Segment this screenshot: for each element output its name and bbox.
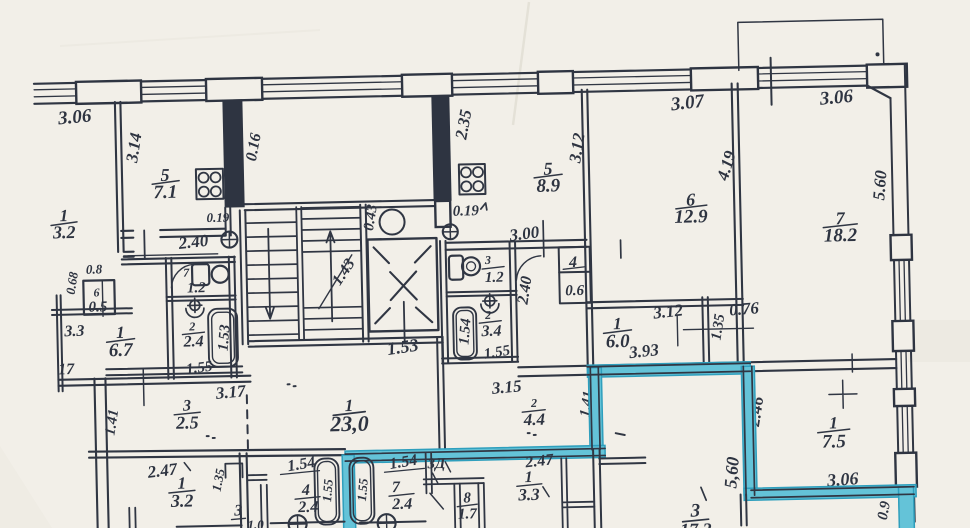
svg-text:1.54: 1.54 [456,317,474,345]
svg-text:18.2: 18.2 [824,225,858,247]
svg-text:3.17: 3.17 [214,381,248,403]
svg-text:12.9: 12.9 [674,206,708,228]
svg-text:3.4: 3.4 [480,323,501,340]
svg-text:3: 3 [233,502,242,519]
svg-text:3.2: 3.2 [170,490,194,511]
svg-text:2: 2 [530,396,537,410]
svg-text:1.53: 1.53 [215,324,233,352]
svg-text:3.06: 3.06 [56,105,93,129]
svg-text:3.3: 3.3 [63,323,84,340]
svg-text:1.55: 1.55 [185,359,214,378]
svg-text:7: 7 [392,479,401,496]
svg-text:1: 1 [524,469,532,486]
svg-text:8: 8 [463,490,471,506]
svg-text:0.76: 0.76 [728,298,760,319]
svg-text:2.4: 2.4 [391,496,412,513]
svg-text:8.9: 8.9 [536,175,561,197]
svg-text:3.2: 3.2 [52,222,76,243]
svg-text:2.40: 2.40 [177,231,210,253]
svg-text:3: 3 [689,500,700,521]
svg-text:1.55: 1.55 [354,477,371,501]
svg-text:17: 17 [58,361,75,378]
svg-text:1.55: 1.55 [319,478,336,502]
svg-text:2.47: 2.47 [145,459,179,482]
svg-text:1.2: 1.2 [485,270,505,286]
svg-text:3.07: 3.07 [669,91,707,116]
svg-text:3Д: 3Д [426,456,446,472]
svg-text:5.60: 5.60 [869,169,890,201]
svg-text:1.2: 1.2 [187,280,207,296]
svg-text:3.93: 3.93 [627,340,660,362]
svg-text:5,60: 5,60 [720,456,743,489]
svg-text:1.0: 1.0 [247,517,264,528]
svg-text:2: 2 [484,308,491,322]
svg-text:3.3: 3.3 [517,485,540,504]
svg-text:6.7: 6.7 [109,340,135,362]
svg-text:0.6: 0.6 [565,283,585,299]
svg-text:2.4: 2.4 [182,333,203,350]
svg-text:4.4: 4.4 [523,410,546,429]
svg-text:6: 6 [93,285,99,299]
svg-text:0.8: 0.8 [86,261,103,276]
svg-text:6.0: 6.0 [606,331,631,353]
svg-text:3.06: 3.06 [818,86,855,110]
svg-text:2: 2 [188,319,195,333]
svg-text:4: 4 [301,482,310,499]
svg-text:17.2: 17.2 [680,519,712,528]
svg-text:1: 1 [829,413,838,432]
svg-text:23,0: 23,0 [329,411,369,437]
svg-text:7.1: 7.1 [153,182,177,204]
svg-text:3.00: 3.00 [507,222,540,245]
svg-text:3.15: 3.15 [490,376,523,398]
svg-text:3.12: 3.12 [651,300,684,322]
svg-text:7.5: 7.5 [822,431,847,453]
svg-text:2.47: 2.47 [524,451,556,471]
svg-text:1.7: 1.7 [458,506,478,522]
svg-text:3: 3 [484,253,491,267]
svg-text:0.19: 0.19 [453,203,480,220]
svg-text:2.5: 2.5 [175,412,199,433]
